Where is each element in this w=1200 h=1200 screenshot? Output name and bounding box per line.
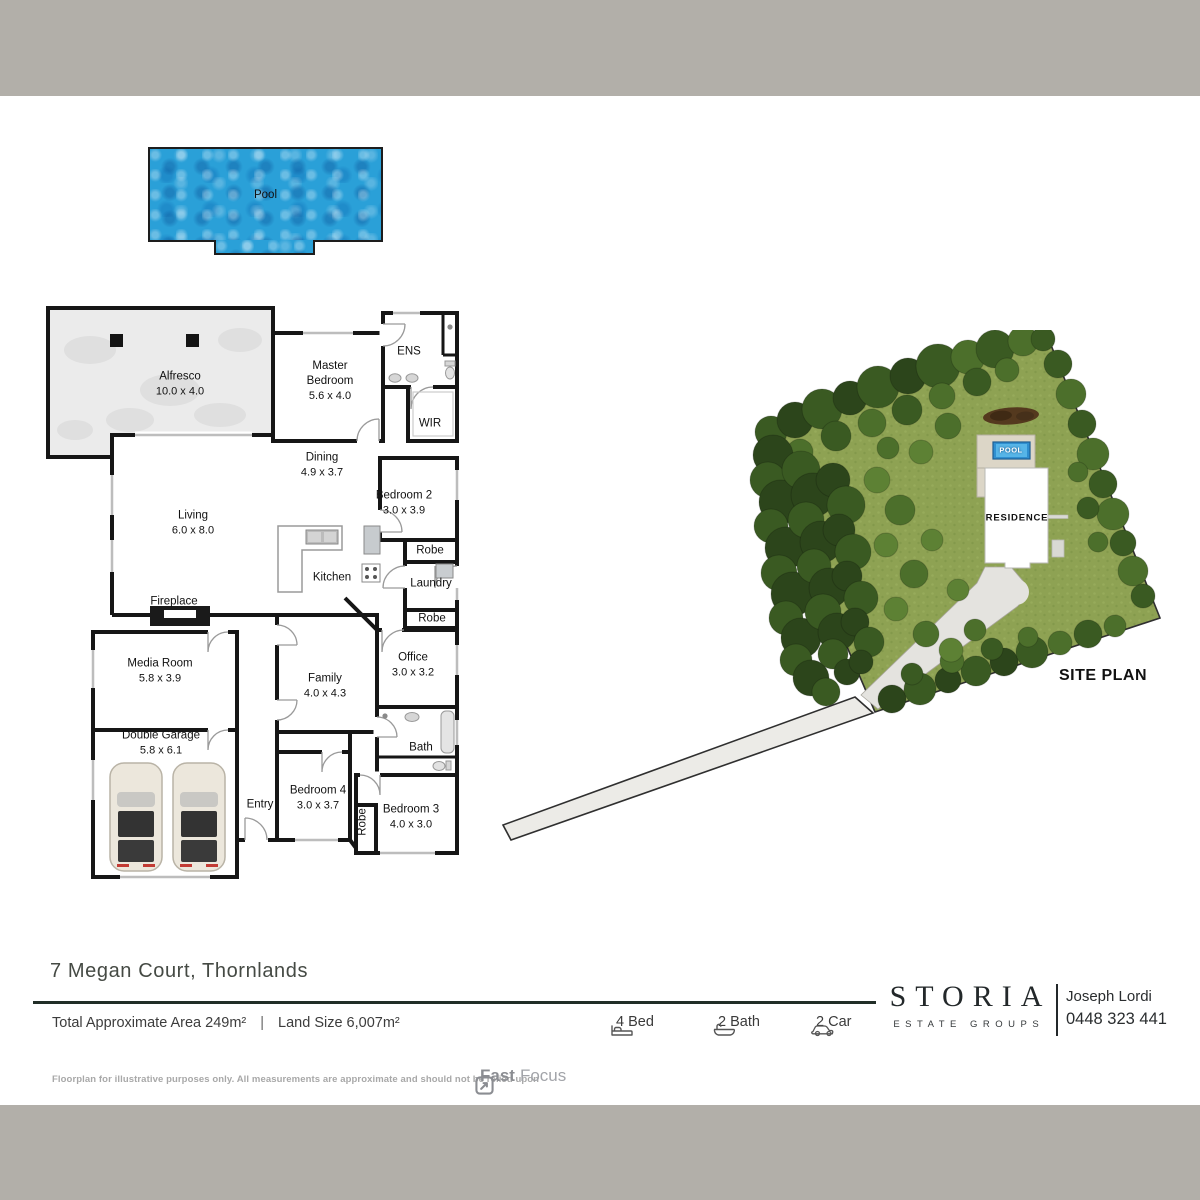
brand-name: STORIA [880, 980, 1052, 1014]
land-size: Land Size 6,007m² [278, 1015, 400, 1031]
room-label-bedroom-4: Bedroom 43.0 x 3.7 [290, 783, 346, 812]
feature-cars: 2 Car [810, 1014, 851, 1030]
room-label-double-garage: Double Garage5.8 x 6.1 [122, 728, 200, 757]
pool-plan: Pool [148, 147, 383, 242]
driveway-strip [503, 697, 873, 840]
room-label-ens: ENS [397, 345, 421, 360]
top-band [0, 0, 1200, 96]
agent-name: Joseph Lordi [1066, 986, 1167, 1008]
agent-phone: 0448 323 441 [1066, 1008, 1167, 1032]
siteplan-pool-label: POOL [999, 446, 1022, 455]
room-label-family: Family4.0 x 4.3 [304, 671, 346, 700]
floorplan-page: Pool [0, 0, 1200, 1200]
pool-notch [214, 240, 315, 255]
details-separator: | [260, 1015, 264, 1031]
property-address: 7 Megan Court, Thornlands [50, 960, 308, 983]
garage-car-left [110, 763, 162, 871]
room-label-bath: Bath [409, 741, 433, 756]
fastfocus-light: Focus [520, 1066, 566, 1086]
room-label-kitchen: Kitchen [313, 571, 351, 586]
pool-shape: Pool [148, 147, 383, 242]
feature-beds: 4 Bed [610, 1014, 654, 1030]
room-label-living: Living6.0 x 8.0 [172, 508, 214, 537]
room-label-robe-1: Robe [416, 544, 444, 559]
room-label-master-bedroom: Master Bedroom5.6 x 4.0 [288, 359, 372, 403]
agent-block: Joseph Lordi 0448 323 441 [1066, 986, 1167, 1032]
room-label-entry: Entry [247, 798, 274, 813]
brand-tagline: ESTATE GROUPS [880, 1019, 1052, 1030]
brand-logo: STORIA ESTATE GROUPS [880, 980, 1052, 1030]
siteplan-residence-label: RESIDENCE [986, 513, 1049, 524]
siteplan-caption: SITE PLAN [1059, 667, 1147, 685]
total-area: Total Approximate Area 249m² [52, 1015, 246, 1031]
room-label-robe-3: Robe [356, 808, 371, 836]
room-label-bedroom-2: Bedroom 23.0 x 3.9 [376, 488, 432, 517]
room-label-office: Office3.0 x 3.2 [392, 650, 434, 679]
feature-baths: 2 Bath [712, 1014, 760, 1030]
room-label-alfresco: Alfresco10.0 x 4.0 [156, 369, 204, 398]
siteplan-drawing [480, 330, 1180, 850]
pool-label: Pool [150, 149, 381, 240]
disclaimer-text: Floorplan for illustrative purposes only… [52, 1074, 539, 1085]
bottom-band [0, 1105, 1200, 1200]
room-label-laundry: Laundry [410, 577, 452, 592]
room-label-media-room: Media Room5.8 x 3.9 [127, 656, 192, 685]
room-label-bedroom-3: Bedroom 34.0 x 3.0 [383, 802, 439, 831]
property-details: Total Approximate Area 249m²|Land Size 6… [52, 1015, 400, 1031]
room-label-robe-2: Robe [418, 612, 446, 627]
fastfocus-logo: FastFocus [475, 1066, 566, 1086]
room-label-wir: WIR [419, 417, 441, 432]
brand-divider [1056, 984, 1058, 1036]
room-label-dining: Dining4.9 x 3.7 [301, 450, 343, 479]
garage-car-right [173, 763, 225, 871]
divider-rule [33, 1001, 876, 1004]
room-label-fireplace: Fireplace [150, 595, 197, 610]
